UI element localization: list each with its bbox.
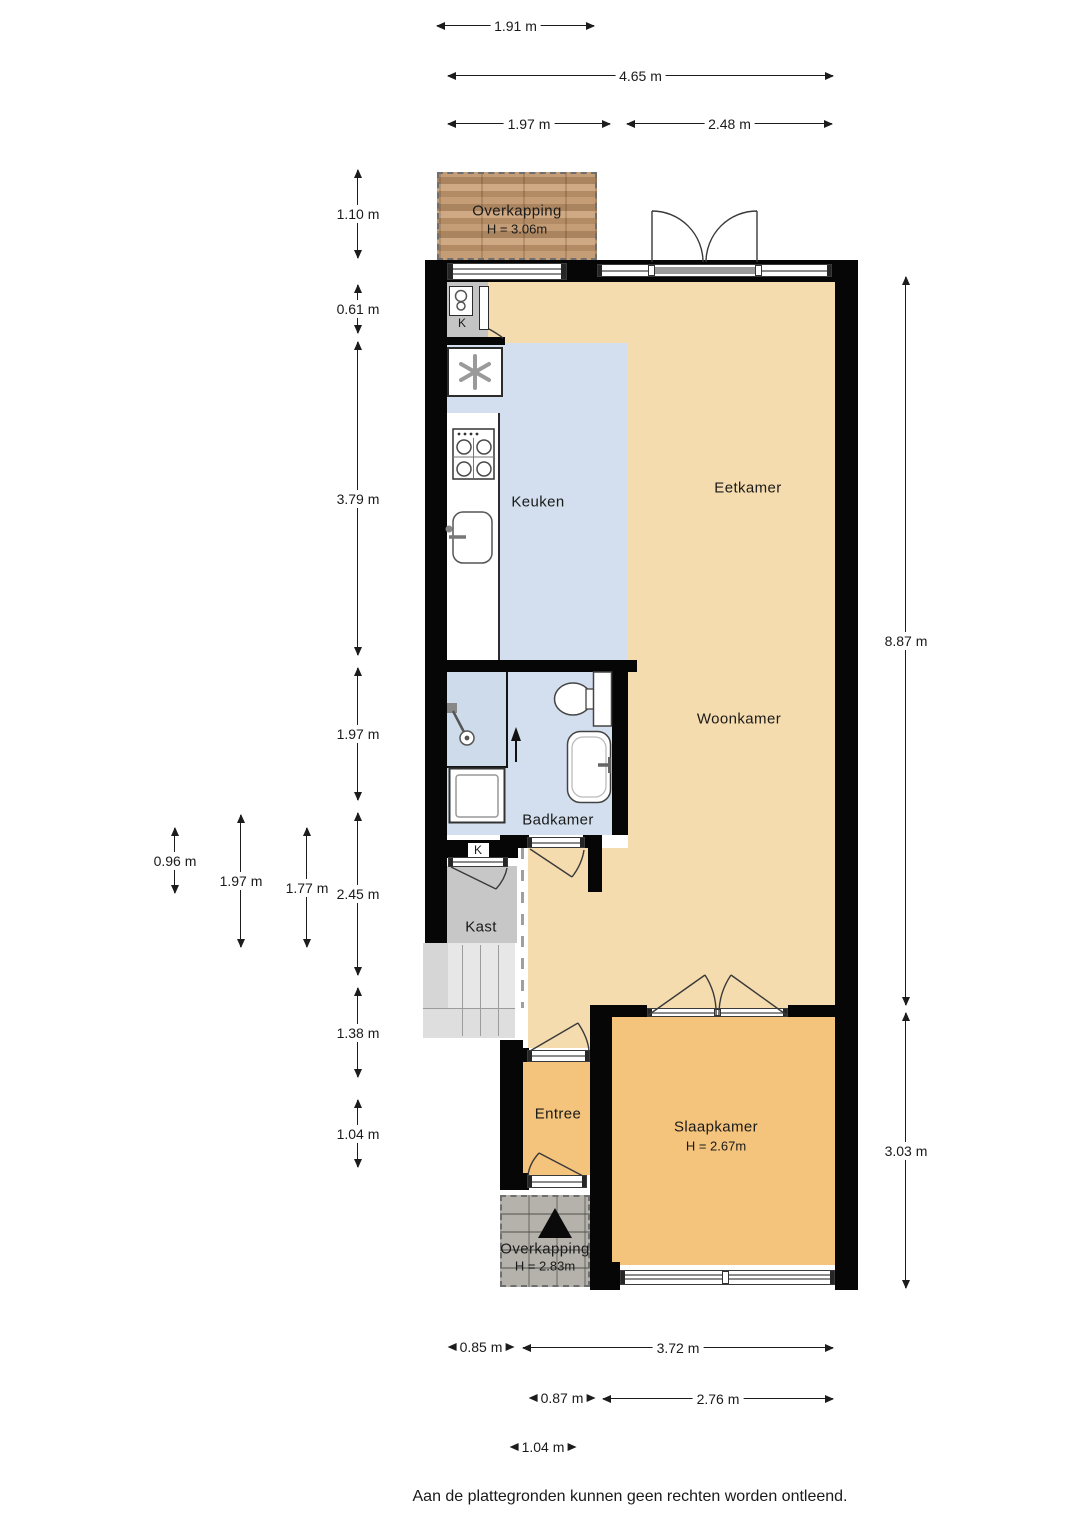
stairs-lower: [423, 1008, 515, 1038]
wall-bedroom-bottom-corner: [590, 1262, 620, 1290]
stair-tread-line: [480, 945, 481, 1036]
dim-top-248: 2.48 m: [627, 123, 832, 124]
label-meter-closet: K: [458, 316, 466, 330]
room-label-entree: Entree: [535, 1106, 582, 1123]
wall-bedroom-left: [590, 1005, 612, 1290]
doorway-bedroom-sill: [647, 1008, 788, 1017]
window-living-front: [597, 264, 832, 277]
boiler-icon: [449, 286, 473, 316]
room-label-woonkamer: Woonkamer: [697, 711, 781, 728]
wall-entry-left: [500, 1040, 523, 1190]
dim-left-197: 1.97 m: [357, 668, 358, 800]
kitchen-counter: [447, 413, 500, 660]
dim-right-303: 3.03 m: [905, 1013, 906, 1288]
doorway-closet-sill: [448, 857, 508, 867]
disclaimer-text: Aan de plattegronden kunnen geen rechten…: [412, 1488, 847, 1506]
room-label-keuken: Keuken: [511, 494, 564, 511]
doorway-bathroom-sill: [527, 837, 585, 848]
dim-right-887: 8.87 m: [905, 277, 906, 1005]
room-label-kast: Kast: [465, 919, 497, 936]
room-height-slaapkamer: H = 2.67m: [686, 1139, 746, 1154]
dim-bottom-085: 0.85 m: [448, 1339, 515, 1355]
wall-bath-bottom-right: [583, 835, 602, 848]
floor-shower-cell: [447, 672, 508, 768]
room-label-overkapping-bottom: Overkapping: [500, 1241, 589, 1258]
dim-top-197: 1.97 m: [448, 123, 610, 124]
dim-top-191: 1.91 m: [437, 25, 594, 26]
wall-bedroom-top-right: [788, 1005, 835, 1017]
stair-tread-line: [462, 945, 463, 1036]
floor-hall-lower: [528, 1008, 590, 1048]
room-height-overkapping-bottom: H = 2.83m: [515, 1259, 575, 1274]
extractor-fan-icon: [447, 347, 503, 397]
wall-hall-stub: [588, 848, 602, 892]
room-label-badkamer: Badkamer: [522, 812, 594, 829]
meter-closet-door: [479, 286, 489, 330]
window-kitchen-front: [447, 263, 567, 280]
floor-living-dining: [628, 282, 835, 1008]
dim-left-197b: 1.97 m: [240, 815, 241, 947]
dim-left-177: 1.77 m: [306, 828, 307, 947]
dashed-partition: [517, 848, 528, 1008]
label-closet-k: K: [474, 843, 482, 857]
dim-left-138: 1.38 m: [357, 988, 358, 1077]
french-door-threshold: [653, 267, 755, 274]
room-label-eetkamer: Eetkamer: [714, 480, 781, 497]
doorway-entry-top-sill: [527, 1050, 590, 1062]
wall-bath-right: [612, 672, 628, 835]
dim-left-104: 1.04 m: [357, 1100, 358, 1167]
room-height-overkapping-top: H = 3.06m: [487, 222, 547, 237]
french-doors-arc: [652, 211, 757, 262]
stair-tread-line: [498, 945, 499, 1036]
dim-bottom-372: 3.72 m: [523, 1347, 833, 1348]
window-bedroom-rear: [620, 1270, 835, 1285]
dim-left-245: 2.45 m: [357, 813, 358, 975]
dim-bottom-104: 1.04 m: [510, 1439, 577, 1455]
wall-kitchen-bath: [425, 660, 637, 672]
room-label-slaapkamer: Slaapkamer: [674, 1119, 758, 1136]
dim-bottom-087: 0.87 m: [529, 1390, 596, 1406]
floorplan-page: Overkapping H = 3.06m K Keuken Eetkamer …: [0, 0, 1080, 1526]
dim-bottom-276: 2.76 m: [603, 1398, 833, 1399]
stair-landing-line: [423, 1008, 515, 1009]
dim-left-379: 3.79 m: [357, 342, 358, 655]
wall-meterkast: [447, 337, 505, 345]
wall-right: [835, 282, 858, 1290]
dim-left-061: 0.61 m: [357, 285, 358, 333]
floor-hall: [528, 848, 635, 1008]
doorway-front-door-sill: [527, 1175, 587, 1188]
wall-entry-bottom: [500, 1173, 529, 1190]
dim-left-110: 1.10 m: [357, 170, 358, 258]
wall-entry-top: [500, 1048, 529, 1062]
room-label-overkapping-top: Overkapping: [472, 203, 561, 220]
dim-left-096: 0.96 m: [174, 828, 175, 893]
wall-bedroom-top-left: [590, 1005, 647, 1017]
dim-top-465: 4.65 m: [448, 75, 833, 76]
